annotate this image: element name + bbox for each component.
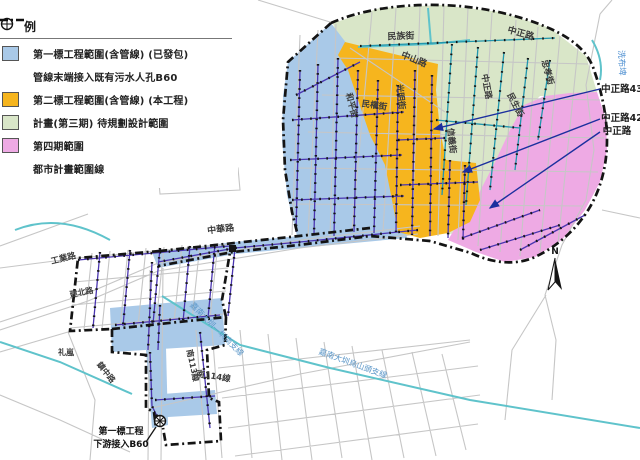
legend-swatch-icon	[0, 138, 26, 153]
annotation-line1: 第一標工程	[98, 425, 143, 437]
planning-map-page: N 民族街中正路中山路光明街和平街民權街信義街中正路民生街忠孝街洗布埤中正路43…	[0, 0, 640, 460]
annotation-line2: 下游接入B60	[93, 438, 148, 450]
downstream-manhole-icon	[155, 416, 166, 427]
water-label-xibupi: 洗布埤	[615, 50, 627, 77]
legend-panel: 例 第一標工程範圍(含管線) (已發包)管線末端接入既有污水人孔B60第二標工程…	[0, 16, 238, 188]
north-arrow-icon: N	[548, 247, 562, 290]
north-label: N	[551, 247, 559, 257]
color-swatch	[2, 138, 19, 153]
legend-item-3: 計畫(第三期) 待規劃設計範圍	[0, 115, 238, 130]
legend-swatch-icon	[0, 115, 26, 130]
street-label-zhenzhong-rd: 鎮中路	[94, 359, 118, 386]
street-label-zhonghua-rd: 中華路	[206, 221, 235, 236]
callout-label-zhongzheng-43: 中正路43	[601, 83, 640, 95]
legend-item-2: 第二標工程範圍(含管線) (本工程)	[0, 92, 238, 107]
street-label-gongye-rd: 工業路	[50, 250, 78, 267]
legend-item-0: 第一標工程範圍(含管線) (已發包)	[0, 46, 238, 61]
legend-items: 第一標工程範圍(含管線) (已發包)管線末端接入既有污水人孔B60第二標工程範圍…	[0, 46, 238, 176]
street-label-minzu-st: 民族街	[387, 30, 414, 43]
legend-item-1: 管線末端接入既有污水人孔B60	[0, 69, 238, 84]
legend-item-label: 第二標工程範圍(含管線) (本工程)	[33, 92, 188, 107]
legend-item-4: 第四期範圍	[0, 138, 238, 153]
legend-item-label: 第一標工程範圍(含管線) (已發包)	[33, 46, 188, 61]
junction-node	[229, 245, 236, 252]
legend-item-label: 都市計畫範圍線	[33, 161, 104, 176]
street-label-jianbei-rd: 建北路	[68, 285, 95, 300]
legend-item-label: 第四期範圍	[33, 138, 84, 153]
legend-swatch-icon	[0, 92, 26, 107]
color-swatch	[2, 46, 19, 61]
legend-swatch-icon	[0, 46, 26, 61]
callout-label-zhongzheng-42: 中正路42	[601, 112, 640, 124]
color-swatch	[2, 115, 19, 130]
place-label-lilan: 礼嵐	[58, 347, 75, 357]
callout-label-zhongzheng: 中正路	[603, 125, 632, 137]
legend-item-label: 計畫(第三期) 待規劃設計範圍	[33, 115, 169, 130]
legend-item-5: 都市計畫範圍線	[0, 161, 238, 176]
legend-divider	[0, 38, 232, 39]
legend-title: 例	[0, 18, 238, 35]
road-label-nan-114: 南114線	[195, 368, 232, 384]
color-swatch	[2, 92, 19, 107]
legend-item-label: 管線末端接入既有污水人孔B60	[33, 69, 178, 84]
